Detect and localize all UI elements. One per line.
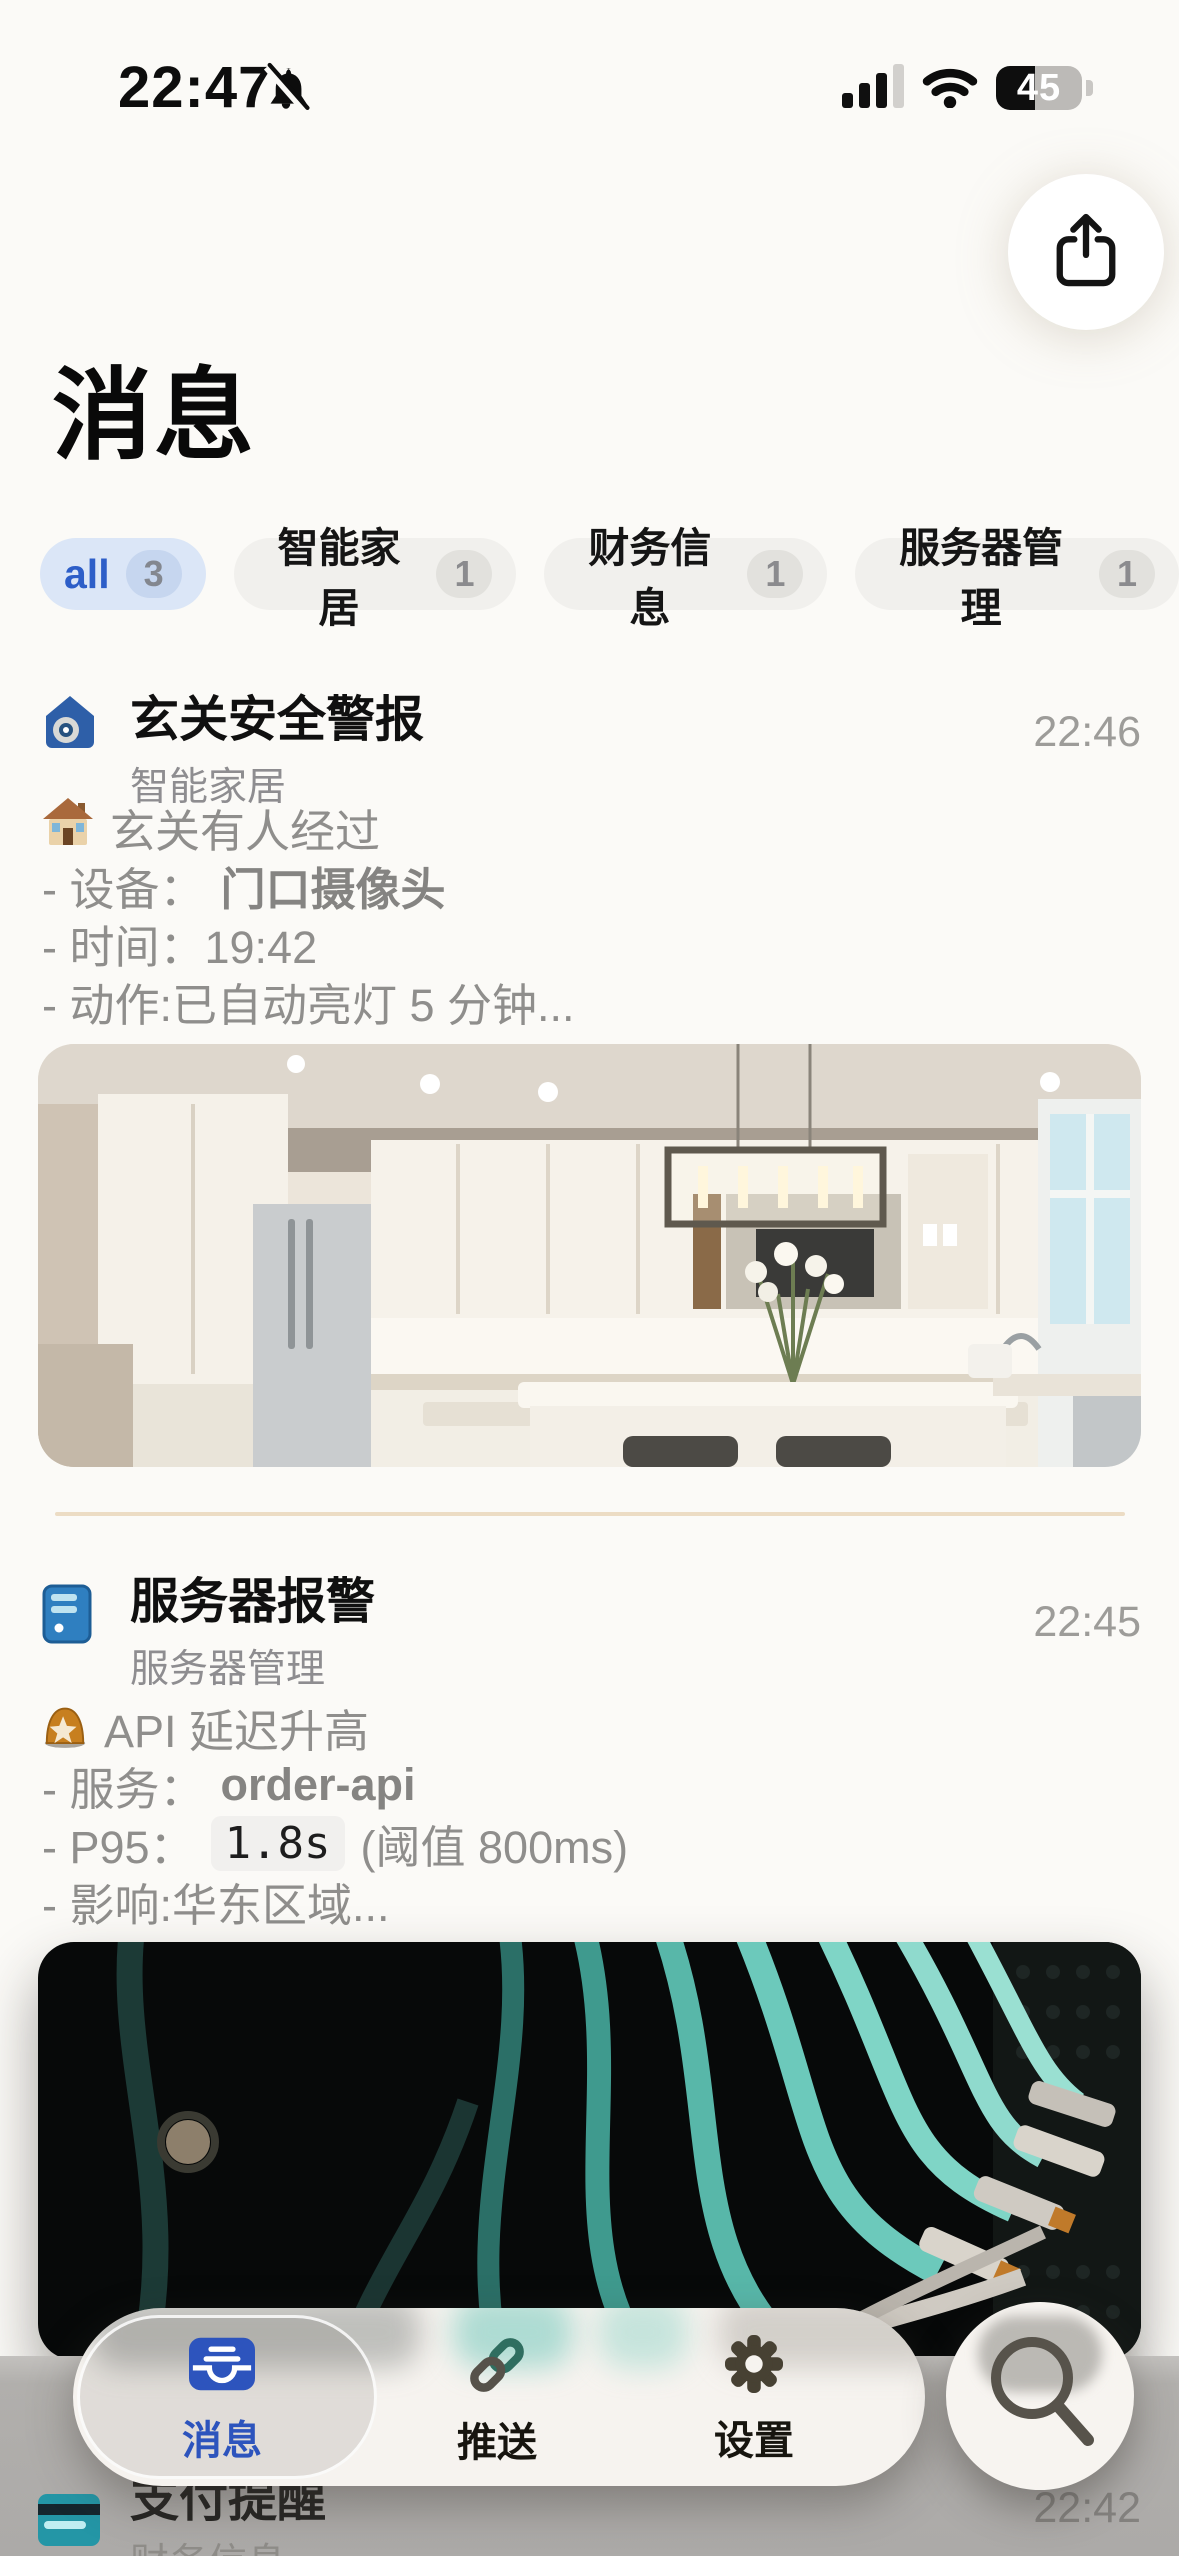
tab-settings[interactable]: 设置 [644,2334,864,2467]
smart-home-app-icon [42,694,98,755]
body-line: - 影响:华东区域... [42,1872,1102,1930]
wifi-icon [922,66,978,108]
message-divider [55,1512,1125,1516]
message-title: 玄关安全警报 [130,680,424,751]
house-emoji [42,797,94,858]
tab-messages[interactable]: 消息 [112,2334,332,2467]
search-button[interactable] [946,2302,1134,2490]
body-line: - 时间：19:42 [42,914,1102,972]
message-category: 财务信息 [130,2532,286,2556]
filter-chip-server[interactable]: 服务器管理 1 [855,538,1179,610]
filter-chip-smart-home[interactable]: 智能家居 1 [234,538,517,610]
search-icon [984,2334,1096,2457]
page-title: 消息 [52,366,256,466]
gear-icon [725,2335,783,2396]
body-line: - 设备：门口摄像头 [42,856,1102,914]
chip-count-badge: 1 [436,550,492,598]
latency-code-chip: 1.8s [211,1816,345,1871]
message-category: 服务器管理 [130,1638,325,1694]
tab-label: 消息 [182,2408,262,2466]
tab-label: 推送 [457,2410,537,2468]
chip-label: 财务信息 [568,514,731,634]
battery-icon: 45 [996,66,1082,110]
body-line: API 延迟升高 [42,1698,1102,1756]
battery-percent: 45 [996,66,1082,110]
filter-chip-all[interactable]: all 3 [40,538,206,610]
share-button[interactable] [1008,174,1164,330]
chip-count-badge: 1 [1099,550,1155,598]
chip-label: 服务器管理 [879,514,1083,634]
message-body: API 延迟升高 - 服务：order-api - P95： 1.8s (阈值 … [42,1698,1102,1930]
message-body: 玄关有人经过 - 设备：门口摄像头 - 时间：19:42 - 动作:已自动亮灯 … [42,798,1102,1030]
inbox-icon [189,2335,255,2396]
tab-push[interactable]: 推送 [387,2334,607,2469]
body-line: 玄关有人经过 [42,798,1102,856]
message-time: 22:45 [1033,1598,1141,1647]
battery-cap [1086,80,1093,96]
chip-label: 智能家居 [258,514,421,634]
chip-label: all [64,551,110,598]
notifications-screen: 22:47 45 消息 a [0,0,1179,2556]
message-title: 服务器报警 [130,1562,375,1633]
chip-count-badge: 1 [747,550,803,598]
body-line: - 动作:已自动亮灯 5 分钟... [42,972,1102,1030]
status-time: 22:47 [118,54,271,121]
link-icon [467,2335,527,2398]
network-cables-photo [38,1942,1141,2360]
message-time: 22:46 [1033,708,1141,757]
filter-chip-finance[interactable]: 财务信息 1 [544,538,827,610]
body-line: - P95： 1.8s (阈值 800ms) [42,1814,1102,1872]
server-app-icon [42,1584,92,1649]
tab-bar: 消息 推送 [73,2308,925,2486]
cell-signal-icon [842,64,908,108]
credit-card-emoji [38,2490,100,2553]
tab-label: 设置 [714,2408,794,2466]
share-icon [1051,210,1121,295]
filter-chips: all 3 智能家居 1 财务信息 1 服务器管理 1 [40,538,1179,610]
message-time: 22:42 [1033,2484,1141,2533]
siren-emoji [42,1695,88,1760]
muted-bell-icon [262,62,310,116]
body-line: - 服务：order-api [42,1756,1102,1814]
chip-count-badge: 3 [126,550,182,598]
kitchen-photo [38,1044,1141,1467]
